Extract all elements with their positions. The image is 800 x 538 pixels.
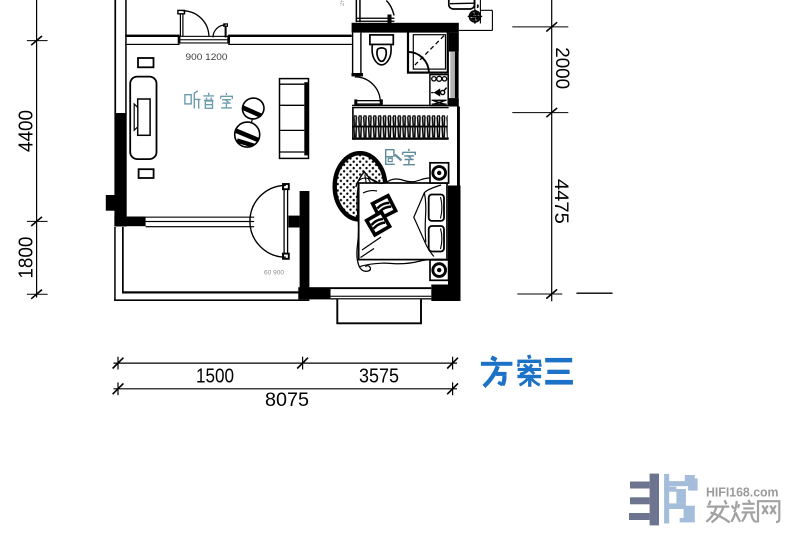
svg-text:1800: 1800 bbox=[15, 237, 37, 279]
svg-text:HIFI168.com: HIFI168.com bbox=[706, 486, 779, 500]
svg-text:4475: 4475 bbox=[550, 179, 572, 224]
svg-text:4400: 4400 bbox=[15, 110, 37, 152]
svg-text:60 900: 60 900 bbox=[264, 270, 284, 277]
svg-text:2F: 2F bbox=[340, 0, 346, 6]
svg-text:2000: 2000 bbox=[551, 47, 573, 89]
svg-text:8075: 8075 bbox=[265, 389, 309, 411]
svg-text:900 1200: 900 1200 bbox=[186, 52, 228, 62]
svg-text:1500: 1500 bbox=[196, 365, 234, 387]
svg-text:3575: 3575 bbox=[359, 365, 399, 387]
